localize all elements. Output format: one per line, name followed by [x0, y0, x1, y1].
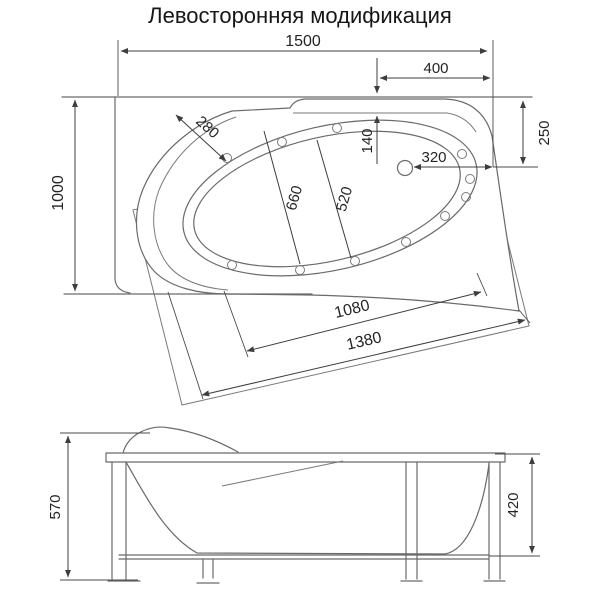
rim-rail	[106, 453, 505, 462]
bathtub-technical-drawing: Левосторонняя модификация	[0, 0, 600, 600]
top-view: 1500 400 1000 140 320 250	[50, 33, 553, 405]
backrest-line	[222, 461, 343, 486]
dim-420: 420	[489, 454, 540, 556]
dim-label-frame-height: 420	[505, 492, 522, 517]
dim-1000: 1000	[50, 100, 75, 291]
dim-label-width-overall: 1000	[50, 175, 67, 211]
leg-right	[489, 462, 500, 579]
page-title: Левосторонняя модификация	[148, 3, 452, 28]
dim-label-front-span-inner: 1080	[333, 297, 372, 322]
dim-label-wall-to-bowl: 140	[359, 128, 376, 153]
dim-250: 250	[523, 101, 553, 164]
leg-left	[112, 462, 126, 579]
dim-label-length-overall: 1500	[285, 33, 321, 50]
dim-400: 400	[377, 58, 490, 93]
dim-label-wall-to-drain: 250	[536, 120, 553, 145]
frame-legs	[108, 462, 505, 581]
dim-label-drain-to-edge: 320	[421, 149, 446, 166]
tub-profile	[126, 462, 489, 554]
leg-middle	[406, 462, 417, 579]
adjustable-foot	[197, 559, 219, 583]
dim-label-corner-offset: 400	[423, 60, 448, 77]
headrest-profile	[123, 427, 238, 453]
bottom-rail	[119, 555, 489, 559]
dim-label-front-span-outer: 1380	[345, 329, 384, 354]
drawing-canvas: Левосторонняя модификация	[0, 0, 600, 600]
apron-line-left	[115, 97, 130, 293]
dim-label-height-total: 570	[47, 494, 64, 519]
side-view: 570 420	[47, 427, 540, 583]
